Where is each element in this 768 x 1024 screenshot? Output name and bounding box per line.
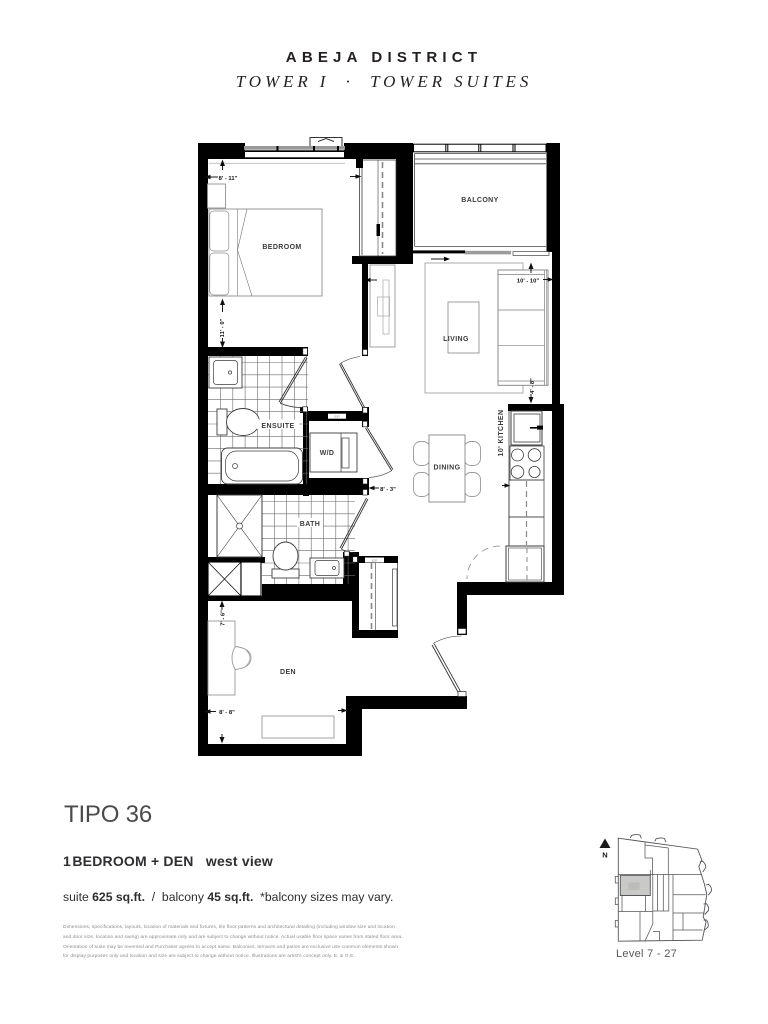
svg-text:7' - 6": 7' - 6"	[221, 610, 227, 626]
svg-text:8' - 8": 8' - 8"	[219, 710, 235, 716]
svg-text:ENSUITE: ENSUITE	[261, 423, 294, 430]
svg-text:8' - 11": 8' - 11"	[219, 176, 238, 182]
svg-text:10' - 10": 10' - 10"	[517, 279, 539, 285]
svg-text:BATH: BATH	[300, 521, 321, 528]
svg-text:11' - 0": 11' - 0"	[220, 318, 226, 337]
svg-text:8' - 3": 8' - 3"	[380, 487, 396, 493]
svg-text:DEN: DEN	[280, 669, 296, 676]
svg-text:EP: EP	[334, 414, 340, 419]
svg-text:LIVING: LIVING	[443, 336, 469, 343]
svg-text:BEDROOM: BEDROOM	[262, 244, 301, 251]
svg-text:N: N	[602, 851, 607, 860]
svg-text:EP: EP	[372, 558, 378, 563]
svg-text:BALCONY: BALCONY	[461, 197, 498, 204]
svg-text:4' - 8": 4' - 8"	[530, 378, 536, 394]
svg-text:W/D: W/D	[320, 450, 335, 457]
svg-text:DINING: DINING	[434, 465, 461, 472]
svg-text:10' KITCHEN: 10' KITCHEN	[498, 410, 505, 457]
